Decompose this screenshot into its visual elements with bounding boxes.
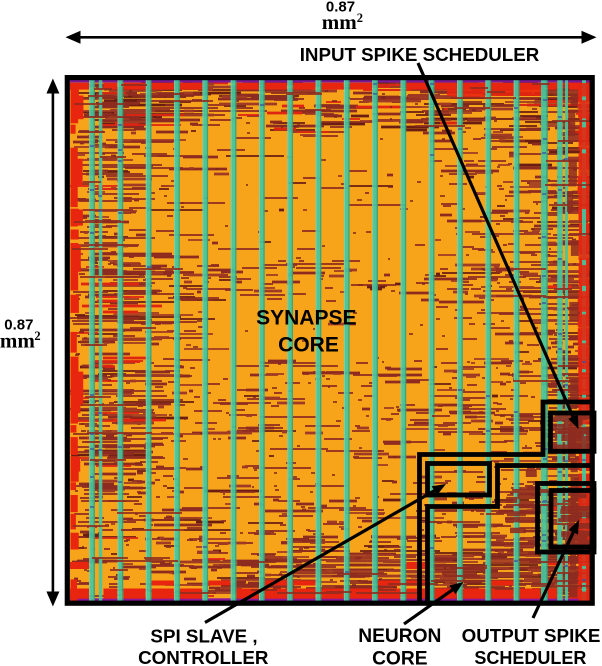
svg-text:NEURON: NEURON	[358, 626, 441, 647]
svg-text:CONTROLLER: CONTROLLER	[138, 647, 269, 666]
svg-text:CORE: CORE	[278, 333, 339, 356]
svg-text:INPUT SPIKE SCHEDULER: INPUT SPIKE SCHEDULER	[300, 44, 540, 65]
svg-text:mm: mm	[322, 10, 357, 34]
svg-text:2: 2	[34, 329, 40, 343]
svg-text:mm: mm	[0, 329, 35, 353]
svg-text:SCHEDULER: SCHEDULER	[474, 648, 586, 666]
svg-text:SPI SLAVE ,: SPI SLAVE ,	[150, 626, 257, 647]
svg-text:OUTPUT SPIKE: OUTPUT SPIKE	[462, 625, 601, 646]
svg-text:SYNAPSE: SYNAPSE	[256, 306, 356, 329]
svg-text:2: 2	[357, 11, 363, 25]
svg-text:CORE: CORE	[372, 649, 428, 666]
